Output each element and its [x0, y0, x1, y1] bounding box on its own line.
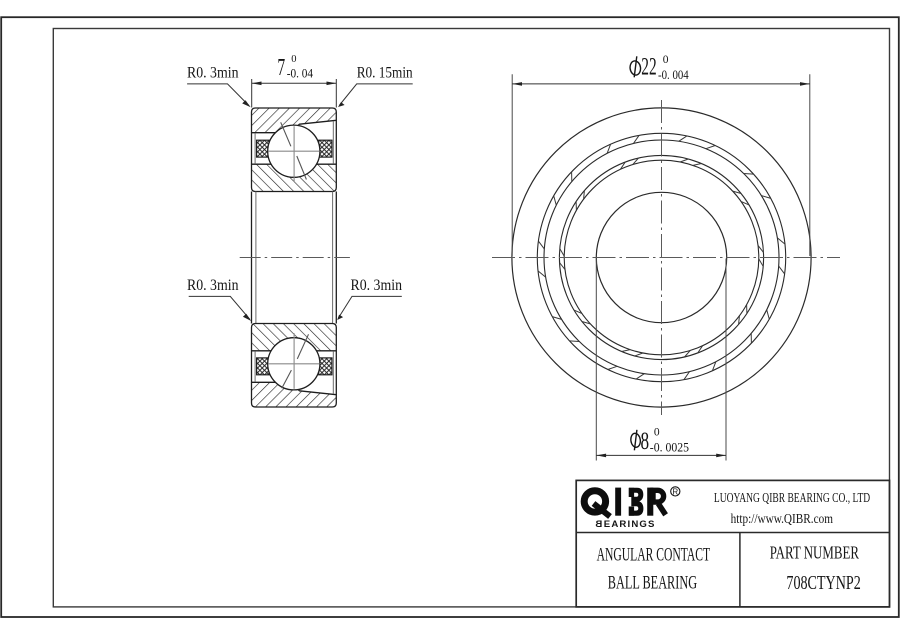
svg-text:-0. 004: -0. 004 — [658, 67, 689, 82]
svg-text:B: B — [595, 519, 602, 530]
svg-text:22: 22 — [641, 53, 656, 80]
svg-text:LUOYANG QIBR BEARING CO., LTD: LUOYANG QIBR BEARING CO., LTD — [714, 491, 870, 506]
svg-text:R0. 3min: R0. 3min — [187, 65, 239, 82]
svg-text:PART NUMBER: PART NUMBER — [770, 543, 860, 563]
svg-text:7: 7 — [277, 55, 285, 81]
svg-text:R: R — [672, 487, 678, 496]
svg-text:BALL BEARING: BALL BEARING — [608, 574, 697, 594]
svg-text:R0. 3min: R0. 3min — [187, 277, 239, 294]
svg-text:EARINGS: EARINGS — [604, 519, 656, 530]
svg-text:708CTYNP2: 708CTYNP2 — [786, 572, 860, 594]
svg-text:R0. 3min: R0. 3min — [351, 277, 403, 294]
svg-text:-0. 0025: -0. 0025 — [650, 440, 689, 454]
svg-text:-0. 04: -0. 04 — [287, 67, 314, 81]
svg-text:0: 0 — [663, 54, 669, 66]
svg-text:8: 8 — [641, 428, 650, 455]
svg-text:0: 0 — [291, 54, 296, 65]
svg-text:0: 0 — [654, 427, 660, 439]
svg-text:R0. 15min: R0. 15min — [357, 65, 413, 82]
svg-text:ANGULAR CONTACT: ANGULAR CONTACT — [597, 546, 711, 566]
svg-text:http://www.QIBR.com: http://www.QIBR.com — [731, 512, 833, 527]
